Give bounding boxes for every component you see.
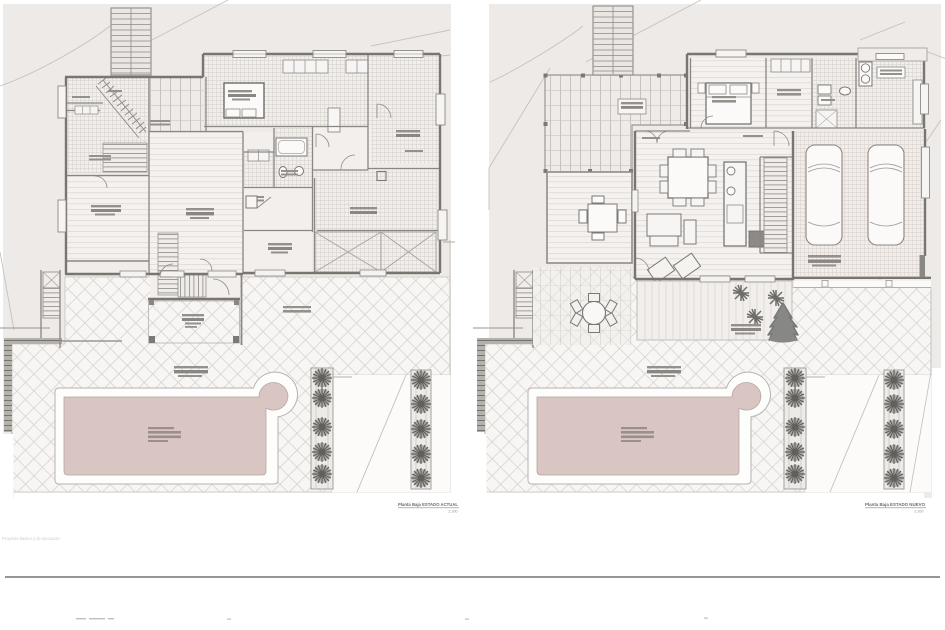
svg-text:1:100: 1:100 bbox=[914, 510, 924, 514]
svg-text:Proyecto basico y de ejecucion: Proyecto basico y de ejecucion bbox=[2, 536, 60, 541]
svg-text:1:100: 1:100 bbox=[448, 510, 458, 514]
svg-text:Planta Baja ESTADO ACTUAL: Planta Baja ESTADO ACTUAL bbox=[398, 502, 458, 508]
svg-text:Planta Baja ESTADO NUEVO: Planta Baja ESTADO NUEVO bbox=[865, 502, 925, 508]
